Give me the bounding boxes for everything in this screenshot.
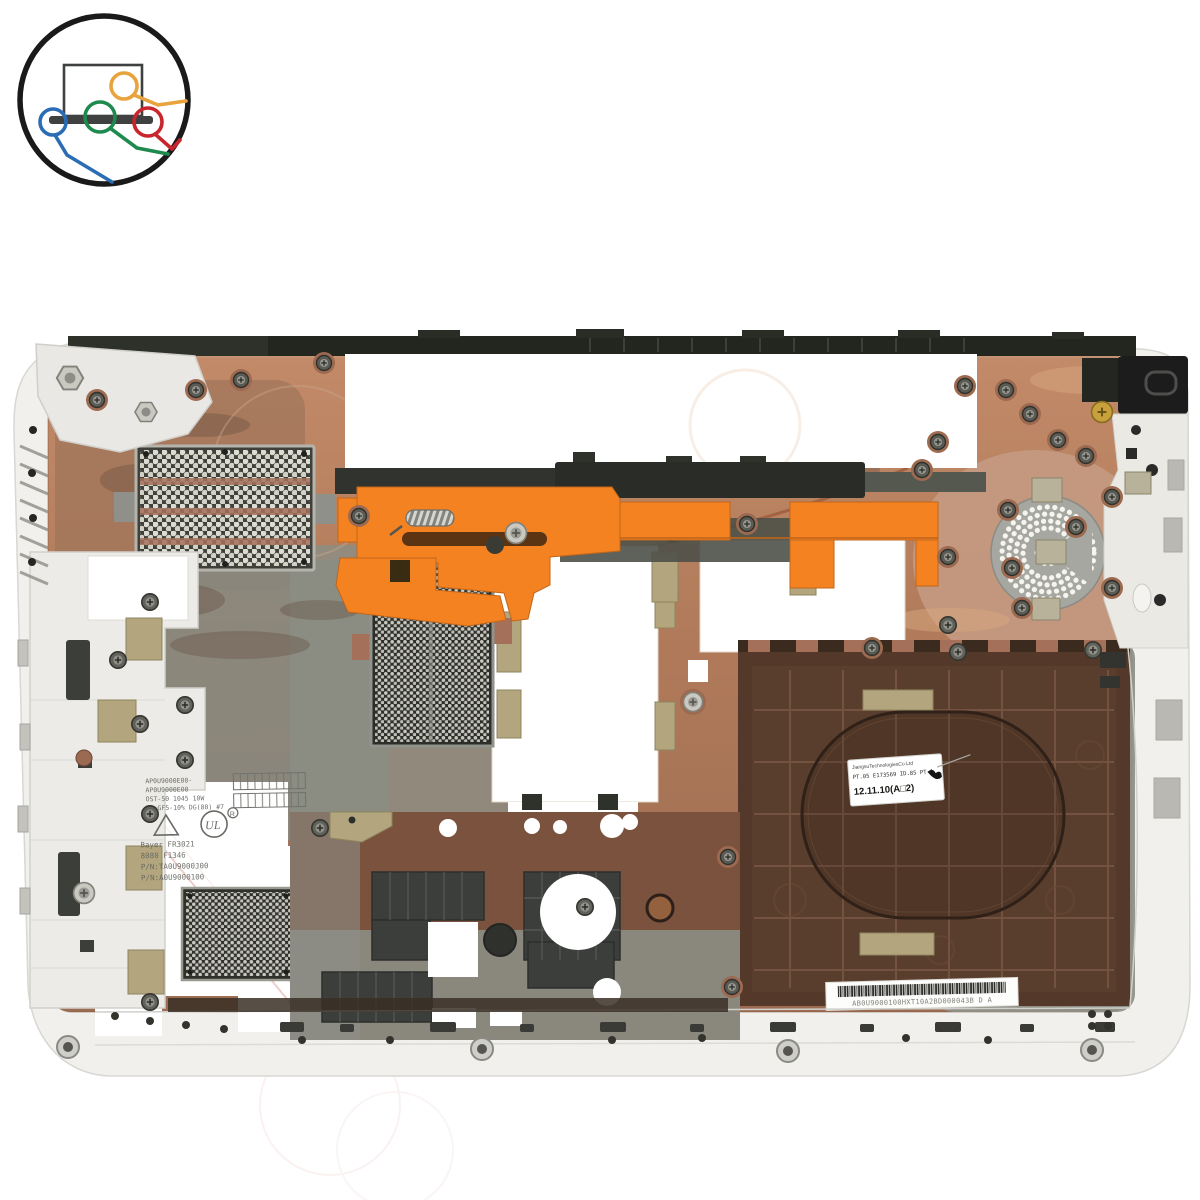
serial-barcode-label: AB0U9000100HXT10A2BD000043B D A <box>826 977 1019 1010</box>
svg-text:R: R <box>230 811 235 818</box>
molded-line: OST-50 1045 10W <box>146 794 205 803</box>
latch-spring <box>406 510 454 526</box>
round-knob <box>484 924 516 956</box>
molded-line: Bayer FR3021 <box>140 839 194 849</box>
molded-line: P/N:TA0U9000J00 <box>141 861 209 871</box>
top-hinge-strip <box>68 329 1136 357</box>
battery-bay: JiangsuTechnologiesCo.Ltd PT.05 E173569 … <box>738 640 1130 1010</box>
molded-line: P/N:A0U9000100 <box>141 872 205 882</box>
laptop-bottom-case: JiangsuTechnologiesCo.Ltd PT.05 E173569 … <box>0 0 1200 1200</box>
molded-line: AP0U9000E00- <box>145 776 192 785</box>
product-photo: JiangsuTechnologiesCo.Ltd PT.05 E173569 … <box>0 0 1200 1200</box>
mold-date-grid <box>234 793 306 808</box>
battery-cavity-edge <box>168 998 728 1012</box>
case-illustration: JiangsuTechnologiesCo.Ltd PT.05 E173569 … <box>0 0 1200 1200</box>
top-center-opening <box>345 354 977 468</box>
mold-date-grid <box>233 773 305 790</box>
molded-line: AP0U9000E00 <box>145 786 188 795</box>
side-window-opening <box>88 556 188 620</box>
bay-oval-recess <box>802 712 1064 918</box>
molded-line: 8080 F1346 <box>141 851 187 861</box>
svg-text:UL: UL <box>205 818 221 832</box>
grommet-ring <box>647 895 673 921</box>
aux-mesh-grille <box>182 888 294 980</box>
